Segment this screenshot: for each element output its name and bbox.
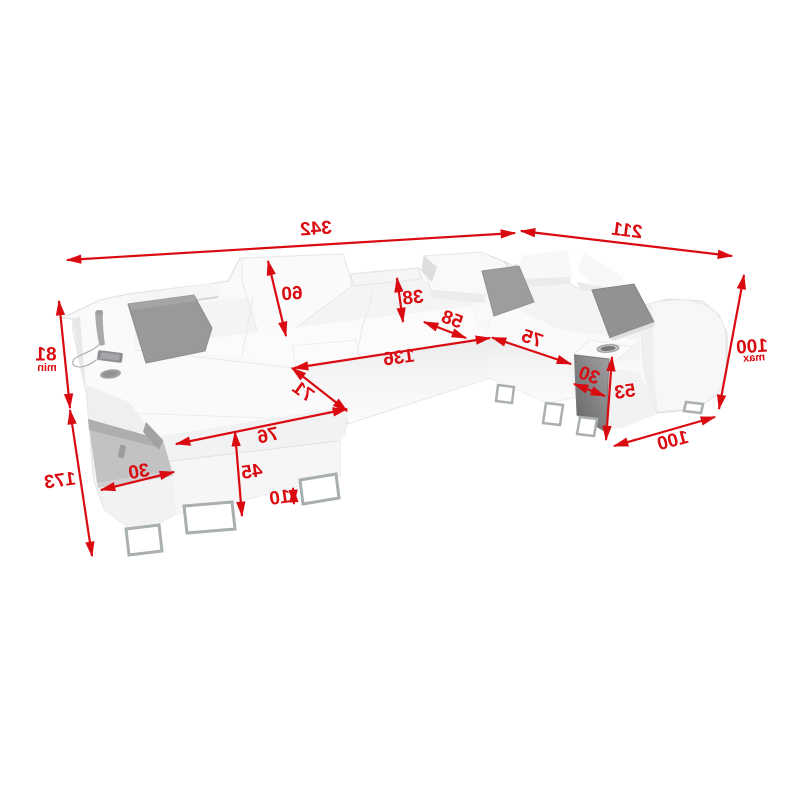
svg-text:10: 10 — [268, 486, 292, 510]
svg-text:76: 76 — [255, 424, 280, 449]
svg-text:60: 60 — [281, 283, 304, 305]
svg-text:136: 136 — [382, 345, 416, 370]
svg-text:173: 173 — [43, 468, 77, 493]
svg-text:342: 342 — [300, 218, 333, 241]
svg-text:38: 38 — [401, 286, 424, 309]
svg-text:211: 211 — [610, 219, 643, 244]
svg-text:max: max — [742, 351, 766, 365]
svg-text:30: 30 — [127, 460, 151, 484]
svg-text:min: min — [37, 362, 57, 374]
svg-text:53: 53 — [613, 380, 637, 404]
svg-text:45: 45 — [240, 460, 264, 484]
